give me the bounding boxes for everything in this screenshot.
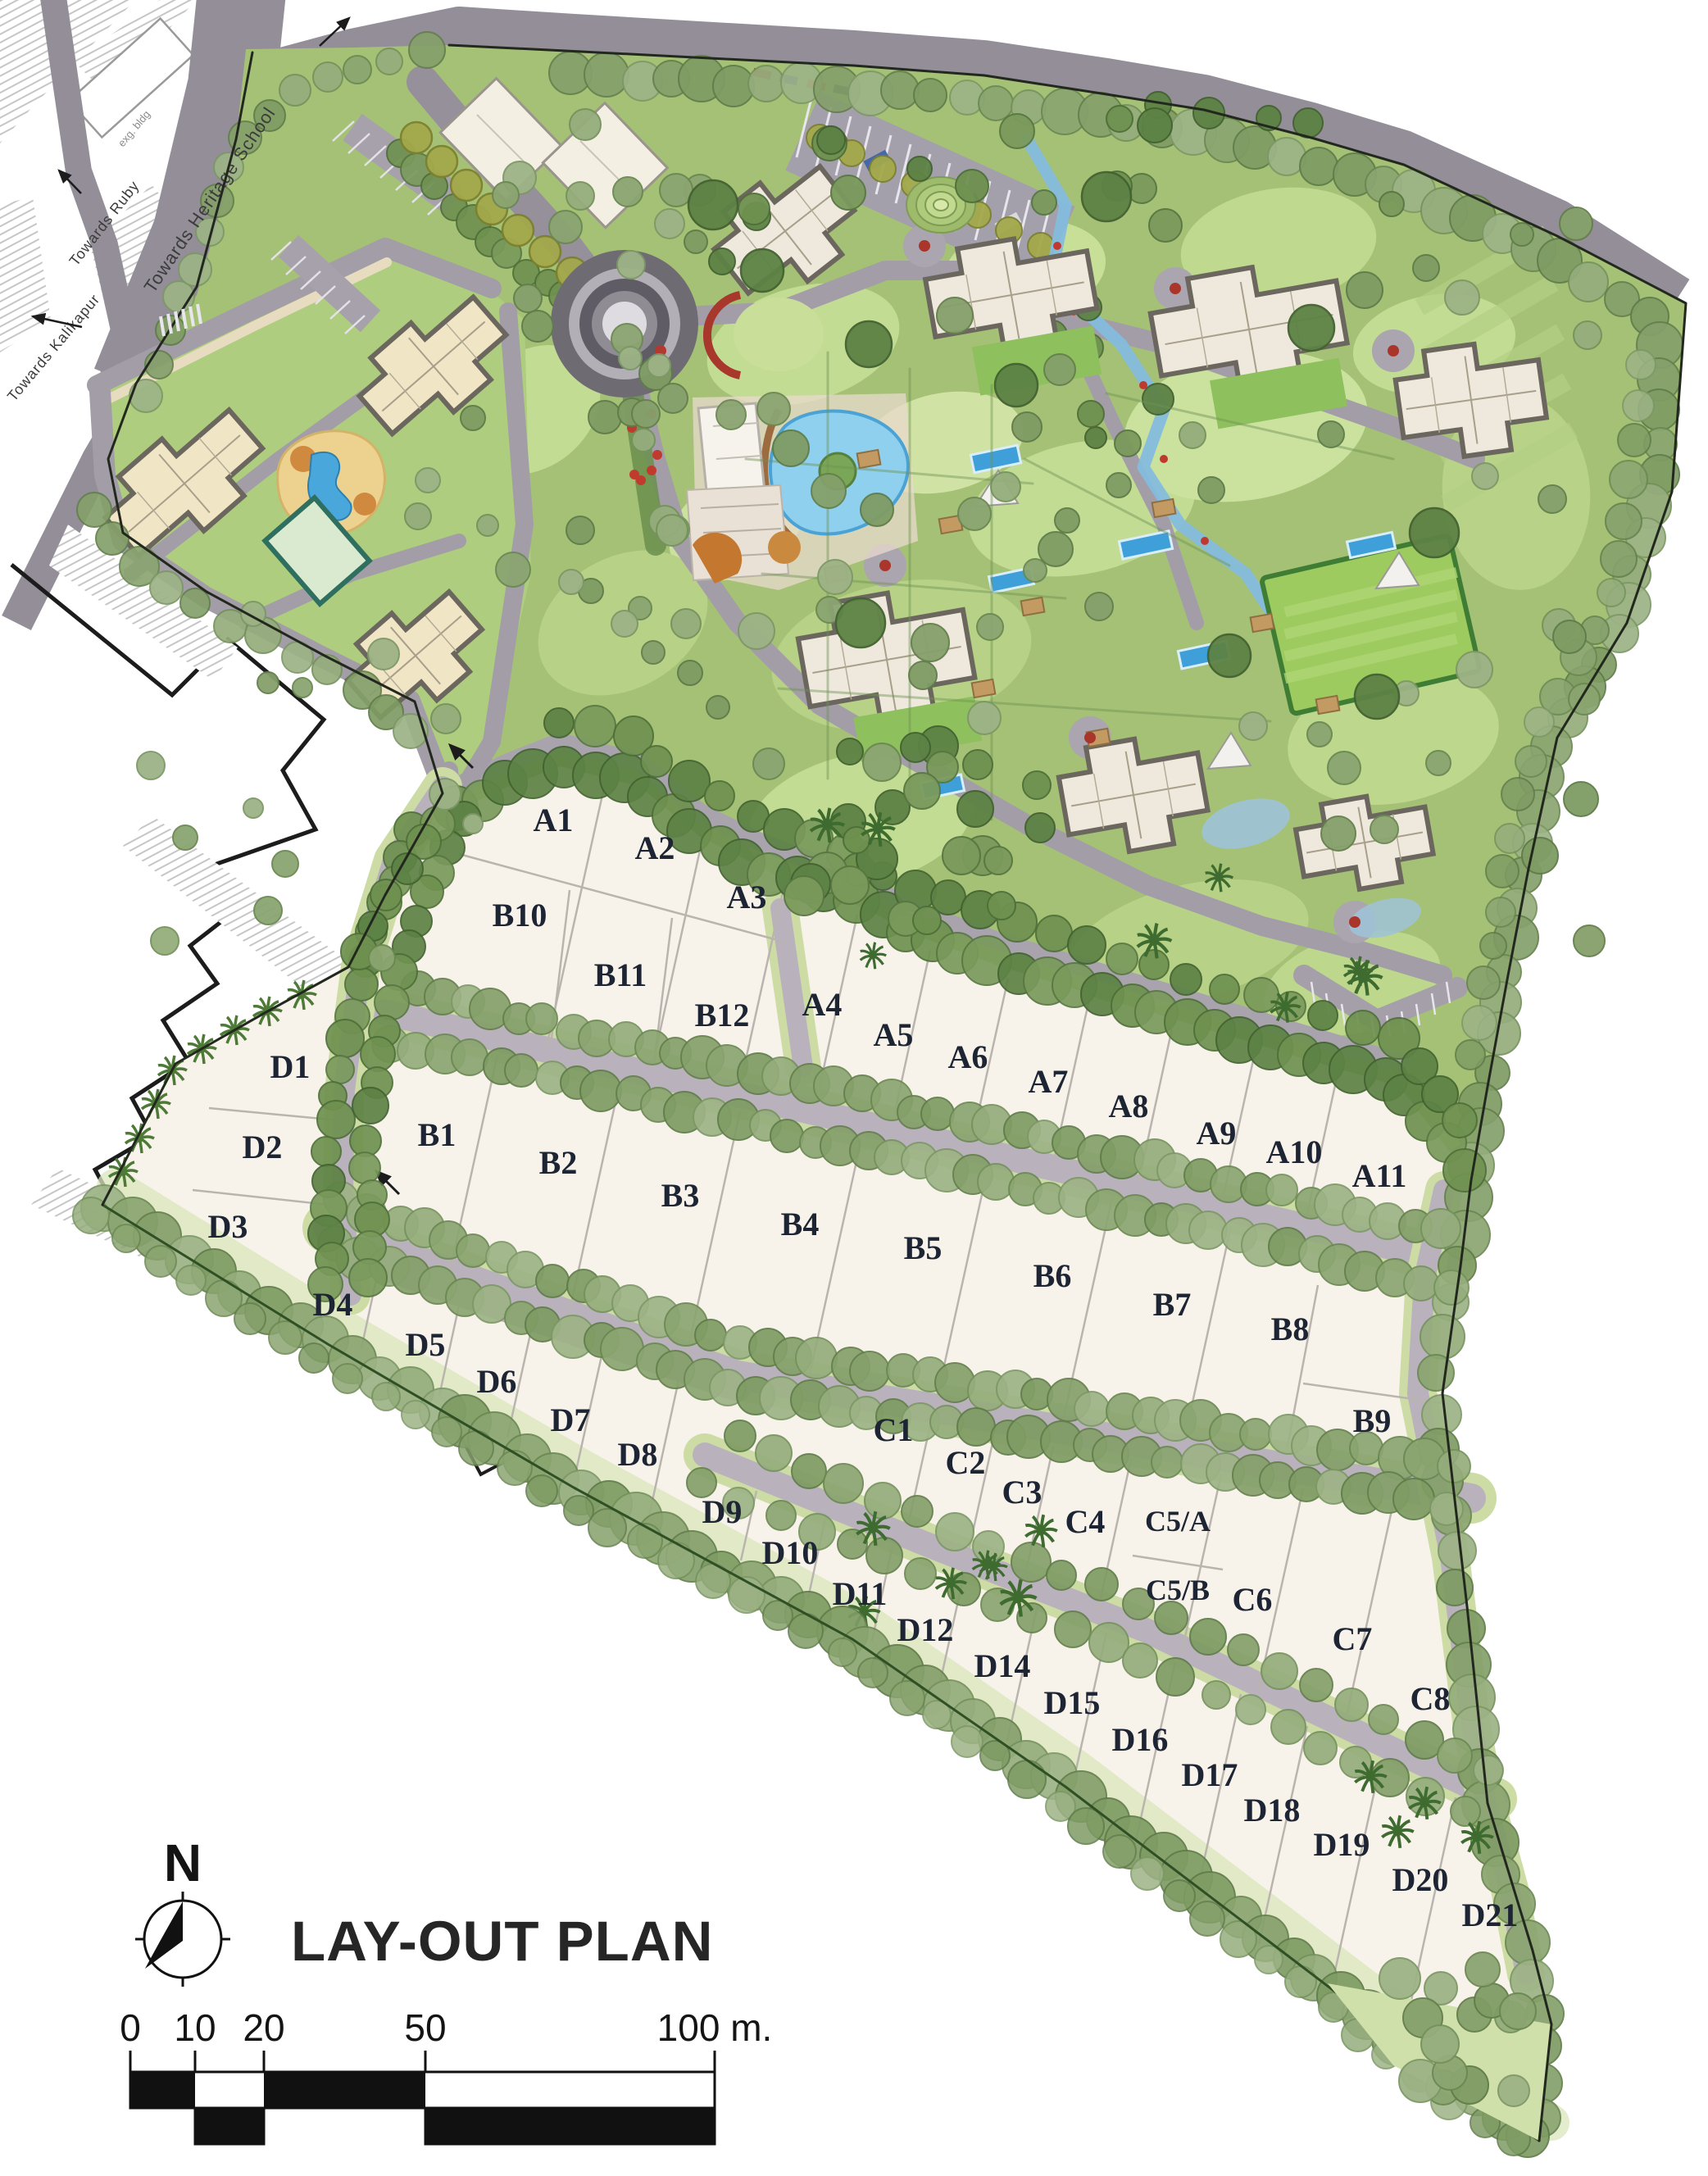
svg-text:D20: D20 xyxy=(1392,1861,1449,1898)
svg-text:A7: A7 xyxy=(1029,1063,1069,1100)
svg-text:A4: A4 xyxy=(802,986,843,1023)
svg-text:D5: D5 xyxy=(406,1326,446,1363)
svg-text:C5/A: C5/A xyxy=(1145,1505,1211,1538)
svg-text:C4: C4 xyxy=(1065,1503,1106,1540)
svg-text:A2: A2 xyxy=(635,829,675,866)
svg-text:C2: C2 xyxy=(946,1444,986,1481)
svg-text:A9: A9 xyxy=(1197,1115,1237,1152)
svg-text:D4: D4 xyxy=(313,1286,353,1323)
svg-text:C6: C6 xyxy=(1233,1581,1273,1618)
svg-text:D19: D19 xyxy=(1314,1826,1370,1863)
svg-text:A6: A6 xyxy=(948,1038,988,1075)
svg-text:0: 0 xyxy=(120,2006,141,2049)
svg-text:10: 10 xyxy=(174,2006,216,2049)
svg-text:B5: B5 xyxy=(904,1229,943,1266)
svg-text:C7: C7 xyxy=(1333,1620,1373,1657)
svg-text:20: 20 xyxy=(243,2006,284,2049)
svg-text:D17: D17 xyxy=(1182,1756,1238,1793)
svg-text:D3: D3 xyxy=(208,1208,248,1245)
svg-text:LAY-OUT PLAN: LAY-OUT PLAN xyxy=(291,1910,713,1973)
svg-text:D15: D15 xyxy=(1044,1684,1101,1721)
svg-text:A11: A11 xyxy=(1352,1157,1407,1194)
svg-text:C8: C8 xyxy=(1410,1680,1451,1717)
svg-text:B1: B1 xyxy=(418,1116,457,1153)
svg-text:B7: B7 xyxy=(1153,1286,1192,1323)
svg-text:B2: B2 xyxy=(539,1144,578,1181)
svg-text:C3: C3 xyxy=(1002,1474,1043,1510)
svg-text:D8: D8 xyxy=(618,1436,658,1473)
svg-text:C1: C1 xyxy=(874,1411,914,1448)
svg-text:B11: B11 xyxy=(594,956,647,993)
svg-text:D2: D2 xyxy=(243,1129,283,1165)
svg-text:B12: B12 xyxy=(695,997,750,1033)
svg-text:D11: D11 xyxy=(833,1575,888,1612)
svg-text:A5: A5 xyxy=(874,1016,914,1053)
svg-text:B8: B8 xyxy=(1271,1311,1310,1347)
svg-text:D21: D21 xyxy=(1462,1897,1519,1933)
svg-text:50: 50 xyxy=(404,2006,446,2049)
svg-text:D12: D12 xyxy=(897,1611,954,1648)
svg-text:D6: D6 xyxy=(477,1363,517,1400)
svg-text:100 m.: 100 m. xyxy=(657,2006,773,2049)
svg-text:D1: D1 xyxy=(270,1048,311,1085)
svg-text:B3: B3 xyxy=(661,1177,700,1214)
svg-text:A8: A8 xyxy=(1109,1088,1149,1124)
svg-text:A1: A1 xyxy=(534,802,574,838)
svg-text:B4: B4 xyxy=(781,1206,820,1242)
svg-text:B9: B9 xyxy=(1353,1402,1392,1439)
svg-text:D9: D9 xyxy=(702,1493,743,1530)
svg-text:B6: B6 xyxy=(1033,1257,1072,1294)
svg-text:D18: D18 xyxy=(1244,1792,1301,1828)
svg-text:D7: D7 xyxy=(551,1401,591,1438)
svg-text:N: N xyxy=(164,1833,202,1892)
svg-text:B10: B10 xyxy=(493,897,547,934)
svg-text:A3: A3 xyxy=(727,879,767,915)
svg-text:A10: A10 xyxy=(1266,1133,1323,1170)
svg-text:D16: D16 xyxy=(1112,1721,1169,1758)
svg-text:D14: D14 xyxy=(974,1647,1031,1684)
svg-text:D10: D10 xyxy=(762,1534,819,1571)
svg-text:C5/B: C5/B xyxy=(1146,1574,1210,1606)
